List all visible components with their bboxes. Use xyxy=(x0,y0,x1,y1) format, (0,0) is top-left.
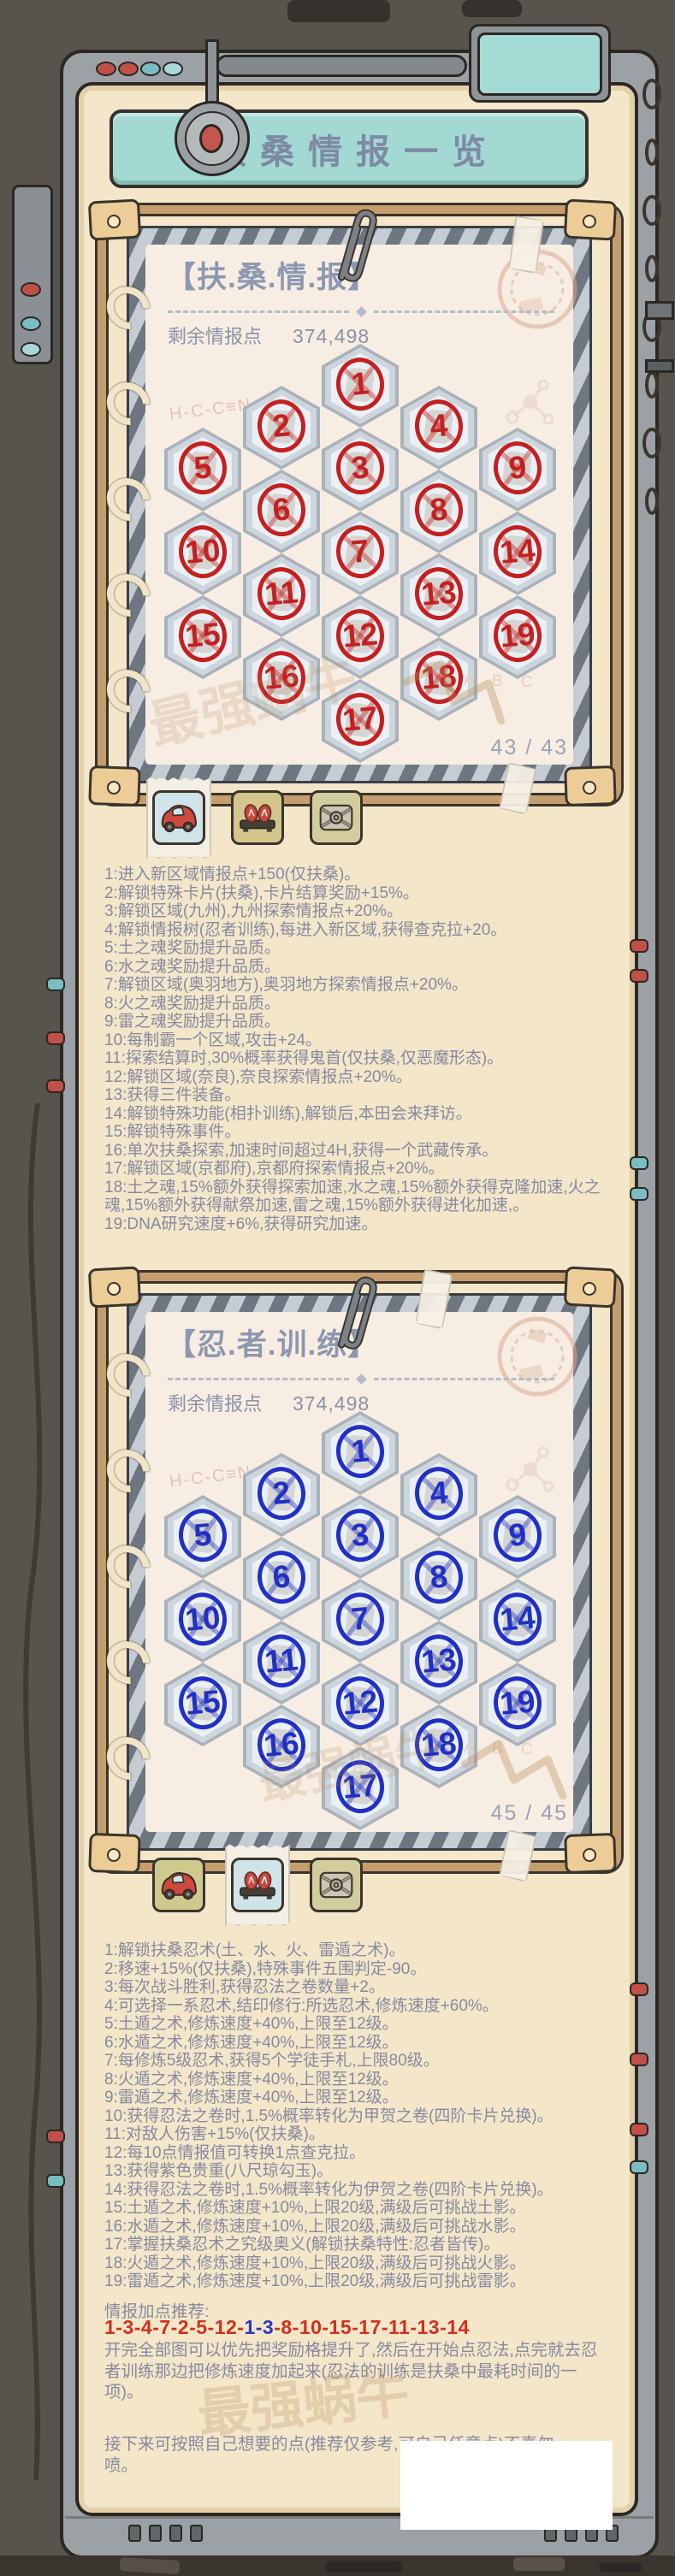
hex-node-2[interactable]: 2 xyxy=(243,386,320,470)
hex-node-6[interactable]: 6 xyxy=(243,1537,320,1621)
note-line: 19:DNA研究速度+6%,获得研究加速。 xyxy=(104,1215,616,1234)
recommended-sequence: 1-3-4-7-2-5-12-1-3-8-10-15-17-11-13-14 xyxy=(104,2316,470,2339)
progress-counter: 43 / 43 xyxy=(440,736,568,760)
screen: 扶桑情报一览 H-C-C≡N 【扶.桑.情.报】 剩余情报点 374,498 xyxy=(0,0,675,2576)
machine-knob[interactable] xyxy=(630,1982,648,1996)
note-line: 1:解锁扶桑忍术(土、水、火、雷遁之术)。 xyxy=(104,1941,628,1960)
note-line: 17:掌握扶桑忍术之究级奥义(解锁扶桑特性:忍者皆传)。 xyxy=(104,2236,628,2254)
vent xyxy=(169,2525,182,2542)
note-line: 7:解锁区域(奥羽地方),奥羽地方探索情报点+20%。 xyxy=(104,976,616,995)
note-line: 18:土之魂,15%额外获得探索加速,水之魂,15%额外获得克隆加速,火之魂,1… xyxy=(104,1179,616,1215)
hex-node-16[interactable]: 16 xyxy=(243,637,320,721)
machine-button[interactable] xyxy=(96,62,116,76)
sandals-tab-selected[interactable] xyxy=(231,1854,284,1914)
note-line: 15:解锁特殊事件。 xyxy=(104,1123,616,1142)
machine-knob[interactable] xyxy=(46,978,65,991)
divider xyxy=(168,308,554,316)
binder-rings xyxy=(106,229,140,783)
hex-node-8[interactable]: 8 xyxy=(400,470,477,553)
rock xyxy=(599,2562,642,2573)
frame-corner xyxy=(564,1833,617,1874)
recommendation-paragraph: 开完全部图可以优先把奖励格提升了,然后在开始点忍法,点完就去忍者训练那边把修炼速… xyxy=(104,2340,601,2403)
hex-node-15[interactable]: 15 xyxy=(164,1663,241,1746)
sequence-segment: 1-3-4-7-2-5-12- xyxy=(104,2316,244,2338)
note-line: 18:火遁之术,修炼速度+10%,上限20级,满级后可挑战火影。 xyxy=(104,2254,628,2273)
machine-knob[interactable] xyxy=(630,2053,648,2066)
hex-node-5[interactable]: 5 xyxy=(164,1495,241,1579)
machine-knob[interactable] xyxy=(630,969,648,983)
hex-node-10[interactable]: 10 xyxy=(164,1579,241,1663)
note-line: 11:对敌人伤害+15%(仅扶桑)。 xyxy=(104,2125,628,2144)
car-tab[interactable] xyxy=(152,1854,205,1914)
hex-node-15[interactable]: 15 xyxy=(164,595,241,679)
hex-node-4[interactable]: 4 xyxy=(400,1453,477,1537)
note-line: 11:探索结算时,30%概率获得鬼首(仅扶桑,仅恶魔形态)。 xyxy=(104,1049,616,1068)
note-line: 17:解锁区域(京都府),京都府探索情报点+20%。 xyxy=(104,1160,616,1179)
note-line: 10:每制霸一个区域,攻击+24。 xyxy=(104,1031,616,1050)
hex-node-5[interactable]: 5 xyxy=(164,428,241,511)
hex-node-19[interactable]: 19 xyxy=(479,595,556,679)
note-line: 19:雷遁之术,修炼速度+10%,上限20级,满级后可挑战雷影。 xyxy=(104,2272,628,2291)
note-line: 7:每修炼5级忍术,获得5个学徒手札,上限80级。 xyxy=(104,2052,628,2071)
note-line: 5:土遁之术,修炼速度+40%,上限至12级。 xyxy=(104,2015,628,2034)
machine-knob[interactable] xyxy=(46,2130,65,2143)
hex-node-9[interactable]: 9 xyxy=(479,1495,556,1579)
car-icon xyxy=(157,800,200,836)
machine-knob[interactable] xyxy=(630,939,648,953)
car-tab-selected[interactable] xyxy=(152,787,205,847)
note-line: 4:解锁情报树(忍者训练),每进入新区域,获得查克拉+20。 xyxy=(104,921,616,940)
note-line: 3:每次战斗胜利,获得忍法之卷数量+2。 xyxy=(104,1978,628,1997)
sequence-segment: -8-10-15-17-11-13-14 xyxy=(274,2316,470,2338)
machine-knob[interactable] xyxy=(630,1187,648,1201)
machine-button[interactable] xyxy=(21,282,41,297)
tab-row xyxy=(152,1854,363,1914)
machine-slot xyxy=(216,55,467,77)
hex-node-3[interactable]: 3 xyxy=(322,1495,399,1579)
note-line: 6:水遁之术,修炼速度+40%,上限至12级。 xyxy=(104,2034,628,2053)
notes-list: 1:解锁扶桑忍术(土、水、火、雷遁之术)。2:移速+15%(仅扶桑),特殊事件五… xyxy=(104,1941,628,2291)
hex-node-7[interactable]: 7 xyxy=(322,511,399,595)
sandals-icon xyxy=(236,800,279,836)
note-line: 2:解锁特殊卡片(扶桑),卡片结算奖励+15%。 xyxy=(104,884,616,903)
note-line: 5:土之魂奖励提升品质。 xyxy=(104,939,616,958)
sandals-icon xyxy=(236,1867,279,1903)
note-line: 10:获得忍法之卷时,1.5%概率转化为甲贺之卷(四阶卡片兑换)。 xyxy=(104,2107,628,2126)
note-line: 14:获得忍法之卷时,1.5%概率转化为伊贺之卷(四阶卡片兑换)。 xyxy=(104,2181,628,2200)
note-line: 12:解锁区域(奈良),奈良探索情报点+20%。 xyxy=(104,1068,616,1087)
note-line: 2:移速+15%(仅扶桑),特殊事件五围判定-90。 xyxy=(104,1960,628,1979)
sandals-tab[interactable] xyxy=(231,787,284,847)
machine-knob[interactable] xyxy=(630,1156,648,1170)
note-line: 16:单次扶桑探索,加速时间超过4H,获得一个武藏传承。 xyxy=(104,1142,616,1161)
vent xyxy=(149,2525,162,2542)
hex-node-17[interactable]: 17 xyxy=(322,679,399,763)
hex-node-11[interactable]: 11 xyxy=(243,1621,320,1705)
binder-rings xyxy=(106,1297,140,1851)
hex-node-13[interactable]: 13 xyxy=(400,553,477,637)
hex-node-10[interactable]: 10 xyxy=(164,511,241,595)
hex-node-2[interactable]: 2 xyxy=(243,1453,320,1537)
hex-node-12[interactable]: 12 xyxy=(322,1663,399,1746)
hex-node-12[interactable]: 12 xyxy=(322,595,399,679)
vent xyxy=(128,2525,141,2542)
note-line: 8:火遁之术,修炼速度+40%,上限至12级。 xyxy=(104,2071,628,2089)
machine-knob[interactable] xyxy=(630,2123,648,2136)
note-line: 4:可选择一系忍术,结印修行:所选忍术,修炼速度+60%。 xyxy=(104,1997,628,2016)
pipe-decoration xyxy=(645,359,674,373)
hex-node-3[interactable]: 3 xyxy=(322,428,399,511)
rope-decoration xyxy=(0,0,60,2576)
hex-node-11[interactable]: 11 xyxy=(243,553,320,637)
machine-button[interactable] xyxy=(118,62,139,76)
note-line: 12:每10点情报值可转换1点查克拉。 xyxy=(104,2144,628,2163)
frame-corner xyxy=(564,765,617,806)
hex-node-14[interactable]: 14 xyxy=(479,511,556,595)
hex-node-14[interactable]: 14 xyxy=(479,1579,556,1663)
chest-icon xyxy=(315,800,358,836)
machine-knob[interactable] xyxy=(46,1079,65,1093)
hex-node-8[interactable]: 8 xyxy=(400,1537,477,1621)
medallion-jewel xyxy=(199,124,223,153)
note-line: 13:获得紫色贵重(八尺琼勾玉)。 xyxy=(104,2162,628,2181)
hex-node-13[interactable]: 13 xyxy=(400,1621,477,1705)
hex-node-16[interactable]: 16 xyxy=(243,1705,320,1788)
rock xyxy=(513,2557,565,2571)
note-line: 1:进入新区域情报点+150(仅扶桑)。 xyxy=(104,866,616,884)
machine-button[interactable] xyxy=(21,342,41,357)
hex-node-4[interactable]: 4 xyxy=(400,386,477,470)
chest-tab[interactable] xyxy=(310,1854,363,1914)
hex-node-17[interactable]: 17 xyxy=(322,1746,399,1830)
hex-node-6[interactable]: 6 xyxy=(243,470,320,553)
note-line: 3:解锁区域(九州),九州探索情报点+20%。 xyxy=(104,902,616,921)
frame-corner xyxy=(564,1266,617,1308)
rock xyxy=(325,2561,402,2573)
pendant-stem xyxy=(205,39,219,108)
hex-node-1[interactable]: 1 xyxy=(322,1411,399,1495)
bg-silhouette xyxy=(462,0,522,17)
note-line: 9:雷之魂奖励提升品质。 xyxy=(104,1013,616,1031)
machine-knob[interactable] xyxy=(630,2160,648,2174)
note-line: 13:获得三件装备。 xyxy=(104,1086,616,1105)
machine-knob[interactable] xyxy=(46,2174,65,2188)
chest-tab[interactable] xyxy=(310,787,363,847)
pipe-decoration xyxy=(645,301,674,320)
machine-button[interactable] xyxy=(21,316,41,331)
blank-area xyxy=(400,2441,613,2530)
teal-window xyxy=(477,32,602,96)
hex-node-7[interactable]: 7 xyxy=(322,1579,399,1663)
bg-silhouette xyxy=(287,0,390,22)
sequence-segment: 1-3 xyxy=(244,2316,274,2338)
note-line: 6:水之魂奖励提升品质。 xyxy=(104,958,616,977)
car-icon xyxy=(157,1867,200,1903)
machine-button[interactable] xyxy=(163,62,183,76)
tab-row xyxy=(152,787,363,847)
note-line: 15:土遁之术,修炼速度+10%,上限20级,满级后可挑战土影。 xyxy=(104,2199,628,2218)
note-line: 16:水遁之术,修炼速度+10%,上限20级,满级后可挑战水影。 xyxy=(104,2218,628,2236)
chest-icon xyxy=(315,1867,358,1903)
machine-button[interactable] xyxy=(140,62,161,76)
stamp-icon xyxy=(494,1314,580,1399)
machine-knob[interactable] xyxy=(46,1031,65,1045)
note-line: 14:解锁特殊功能(相扑训练),解锁后,本田会来拜访。 xyxy=(104,1105,616,1124)
frame-corner xyxy=(564,198,617,240)
hex-node-9[interactable]: 9 xyxy=(479,428,556,511)
hex-node-1[interactable]: 1 xyxy=(322,344,399,428)
divider xyxy=(168,1375,554,1383)
note-line: 8:火之魂奖励提升品质。 xyxy=(104,995,616,1013)
note-line: 9:雷遁之术,修炼速度+40%,上限至12级。 xyxy=(104,2089,628,2107)
vent xyxy=(190,2525,203,2542)
notes-list: 1:进入新区域情报点+150(仅扶桑)。2:解锁特殊卡片(扶桑),卡片结算奖励+… xyxy=(104,866,616,1233)
